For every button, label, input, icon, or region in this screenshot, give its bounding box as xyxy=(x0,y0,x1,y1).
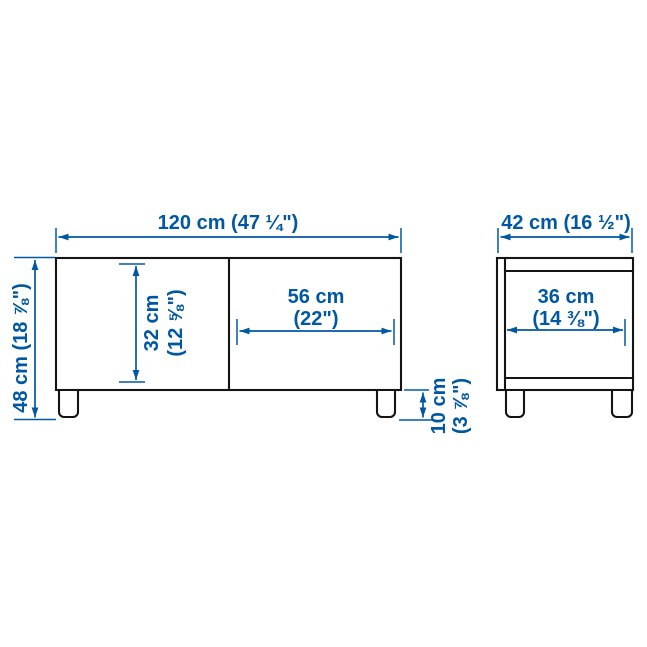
front-view-right-leg xyxy=(377,390,395,417)
dim-label-inner-depth-cm: 36 cm xyxy=(538,286,595,308)
dim-label-inner-height-cm: 32 cm xyxy=(141,295,163,352)
dim-overall-depth: 42 cm (16 ½") xyxy=(498,212,632,253)
dim-inner-depth: 36 cm (14 ⅜") xyxy=(507,286,625,346)
dim-overall-width: 120 cm (47 ¼") xyxy=(56,212,401,253)
product-dimension-diagram: 120 cm (47 ¼") 48 cm (18 ⅞") 32 cm (12 ⅝… xyxy=(0,0,647,647)
side-view xyxy=(497,258,633,417)
dim-door-width: 56 cm (22") xyxy=(237,286,394,345)
dim-overall-height: 48 cm (18 ⅞") xyxy=(10,258,56,420)
front-view xyxy=(56,258,401,417)
dim-leg-height: 10 cm (3 ⅞") xyxy=(399,378,472,435)
dim-label-leg-height-inch: (3 ⅞") xyxy=(450,378,472,434)
side-view-left-leg xyxy=(506,390,524,417)
dim-label-inner-depth-inch: (14 ⅜") xyxy=(532,308,599,330)
dim-label-door-width-inch: (22") xyxy=(293,308,338,330)
dim-label-overall-width: 120 cm (47 ¼") xyxy=(158,212,299,234)
dim-label-overall-height: 48 cm (18 ⅞") xyxy=(10,283,32,413)
front-view-left-leg xyxy=(59,390,78,417)
dim-label-overall-depth: 42 cm (16 ½") xyxy=(501,212,631,234)
dim-label-leg-height-cm: 10 cm xyxy=(428,378,450,435)
dim-inner-height: 32 cm (12 ⅝") xyxy=(119,264,187,382)
page-background: 120 cm (47 ¼") 48 cm (18 ⅞") 32 cm (12 ⅝… xyxy=(0,0,647,647)
dim-label-door-width-cm: 56 cm xyxy=(288,286,345,308)
dim-label-inner-height-inch: (12 ⅝") xyxy=(165,289,187,356)
side-view-right-leg xyxy=(612,390,632,417)
